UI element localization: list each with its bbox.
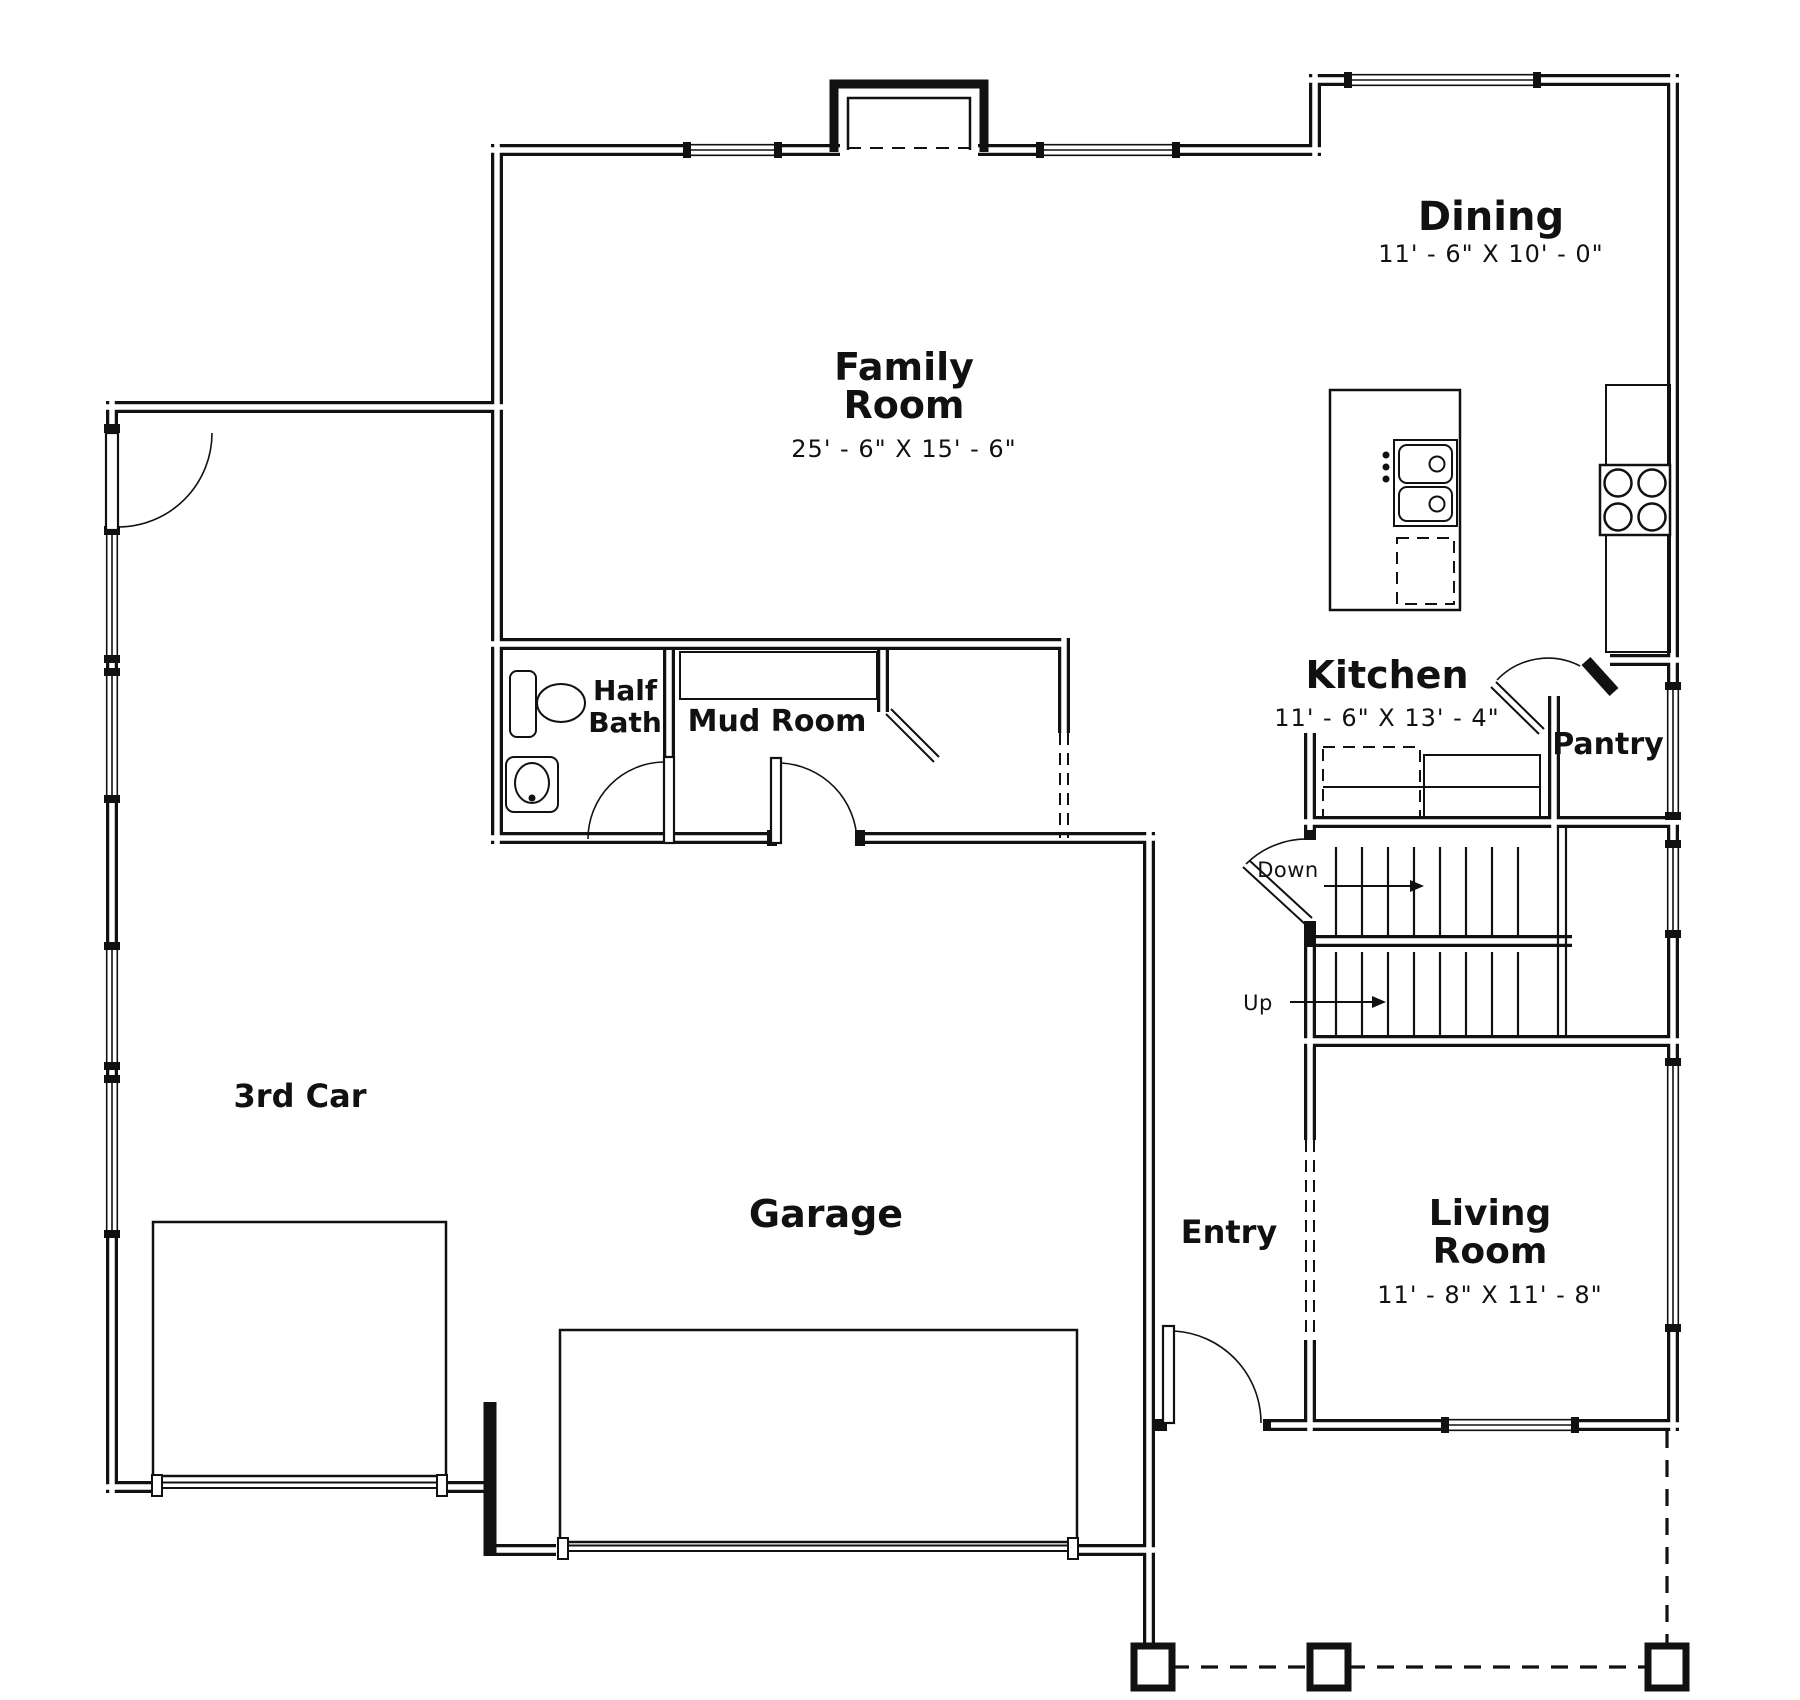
family-room-label2: Room	[843, 383, 964, 427]
stairs	[1290, 747, 1566, 1035]
toilet-icon	[510, 671, 585, 737]
mud-room-bench	[680, 652, 877, 699]
mud-room-label: Mud Room	[688, 704, 867, 739]
garage-door-main	[558, 1330, 1078, 1559]
stairs-down	[1324, 847, 1518, 935]
window	[1344, 72, 1541, 88]
sink-icon	[1383, 440, 1458, 526]
window	[1665, 1058, 1681, 1332]
pantry-door	[1491, 658, 1580, 734]
window	[683, 142, 782, 158]
kitchen-dims: 11' - 6" X 13' - 4"	[1274, 704, 1499, 732]
porch	[1134, 1431, 1686, 1688]
window	[104, 668, 120, 803]
dining-label: Dining	[1418, 194, 1564, 240]
kitchen-fixtures	[1330, 385, 1670, 652]
half-bath-door	[588, 757, 674, 843]
understair-storage	[1323, 747, 1420, 817]
doors	[106, 433, 1580, 1423]
porch-column	[1134, 1646, 1172, 1688]
porch-column	[1648, 1646, 1686, 1688]
pedestal-sink-icon	[506, 757, 558, 812]
stairs-down-label: Down	[1257, 858, 1319, 882]
window	[1036, 142, 1180, 158]
porch-column	[1310, 1646, 1348, 1688]
stairs-up-label: Up	[1243, 991, 1273, 1015]
closet-door	[886, 709, 939, 762]
window	[104, 1075, 120, 1238]
window	[1665, 840, 1681, 938]
kitchen-label: Kitchen	[1305, 653, 1468, 697]
pantry-label: Pantry	[1552, 727, 1664, 762]
window	[104, 533, 120, 663]
fireplace	[834, 84, 984, 152]
garage-doors	[152, 1222, 1078, 1559]
family-room-dims: 25' - 6" X 15' - 6"	[791, 435, 1016, 463]
side-door	[106, 433, 212, 530]
dining-dims: 11' - 6" X 10' - 0"	[1378, 240, 1603, 268]
stairs-up	[1290, 952, 1518, 1035]
floor-plan: Family Room 25' - 6" X 15' - 6" Dining 1…	[0, 0, 1800, 1700]
entry-label: Entry	[1181, 1213, 1278, 1251]
garage-label: Garage	[749, 1192, 903, 1236]
dishwasher-icon	[1397, 538, 1454, 604]
pantry-diagonal-wall	[1586, 661, 1614, 692]
cooktop-icon	[1600, 465, 1670, 535]
front-door	[1163, 1326, 1261, 1423]
half-bath-label: Half	[593, 674, 658, 707]
window	[104, 942, 120, 1070]
living-room-label2: Room	[1433, 1231, 1548, 1272]
third-car-label: 3rd Car	[234, 1077, 367, 1115]
mud-room-door	[771, 758, 857, 843]
living-room-label: Living	[1429, 1193, 1551, 1234]
window	[1441, 1417, 1579, 1433]
window	[1665, 682, 1681, 820]
living-room-dims: 11' - 8" X 11' - 8"	[1377, 1281, 1602, 1309]
half-bath-label2: Bath	[588, 706, 662, 739]
floor-plan-page: Family Room 25' - 6" X 15' - 6" Dining 1…	[0, 0, 1800, 1700]
garage-door-third-car	[152, 1222, 447, 1496]
labels: Family Room 25' - 6" X 15' - 6" Dining 1…	[234, 194, 1665, 1309]
